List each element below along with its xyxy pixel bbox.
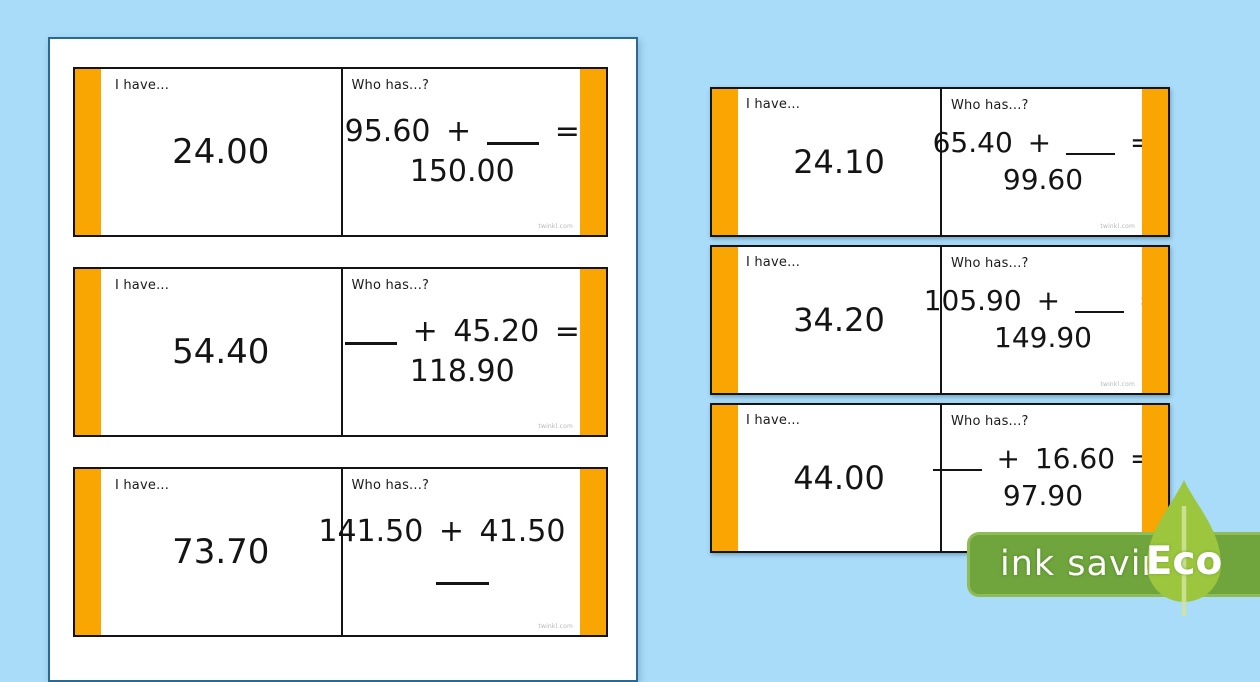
answer-blank <box>345 326 398 345</box>
equation-line-2: 118.90 <box>410 352 515 392</box>
orange-strip-right <box>1142 89 1168 235</box>
orange-strip-left <box>712 405 738 551</box>
i-have-value: 24.10 <box>738 89 940 235</box>
worksheet-preview: { "labels": { "i_have": "I have...", "wh… <box>0 0 1260 630</box>
orange-strip-right <box>580 469 606 635</box>
loop-card-right-1: I have... 24.10 Who has...? 65.40 + = 99… <box>710 87 1170 237</box>
loop-card-right-3: I have... 44.00 Who has...? + 16.60 = 97… <box>710 403 1170 553</box>
equation: 95.60 + = 150.00 <box>347 69 579 235</box>
equation: 65.40 + = 99.60 <box>946 89 1140 235</box>
equation-line-1: + 45.20 = <box>345 312 580 352</box>
equation: 105.90 + = 149.90 <box>946 247 1140 393</box>
loop-card-left-2: I have... 54.40 Who has...? + 45.20 = 11… <box>73 267 608 437</box>
loop-card-right-2: I have... 34.20 Who has...? 105.90 + = 1… <box>710 245 1170 395</box>
answer-blank <box>1066 138 1115 155</box>
orange-strip-left <box>712 247 738 393</box>
equation-line-2 <box>436 552 489 592</box>
equation: + 45.20 = 118.90 <box>347 269 579 435</box>
orange-strip-left <box>712 89 738 235</box>
twinkl-watermark: twinkl.com <box>538 623 573 630</box>
eco-label: Eco <box>1142 539 1226 584</box>
orange-strip-left <box>75 269 101 435</box>
equation-line-2: 149.90 <box>994 320 1092 357</box>
i-have-value: 73.70 <box>101 469 341 635</box>
orange-strip-left <box>75 469 101 635</box>
loop-card-left-1: I have... 24.00 Who has...? 95.60 + = 15… <box>73 67 608 237</box>
i-have-value: 44.00 <box>738 405 940 551</box>
equation-line-1: 95.60 + = <box>345 112 580 152</box>
i-have-value: 34.20 <box>738 247 940 393</box>
answer-blank <box>1075 296 1124 313</box>
equation-line-1: 65.40 + = <box>933 125 1154 162</box>
equation-line-2: 150.00 <box>410 152 515 192</box>
twinkl-watermark: twinkl.com <box>538 423 573 430</box>
equation-line-1: 105.90 + = <box>924 283 1163 320</box>
answer-blank <box>436 566 489 585</box>
twinkl-watermark: twinkl.com <box>1100 223 1135 230</box>
i-have-value: 54.40 <box>101 269 341 435</box>
orange-strip-right <box>580 69 606 235</box>
orange-strip-right <box>580 269 606 435</box>
worksheet-page: I have... 24.00 Who has...? 95.60 + = 15… <box>48 37 638 682</box>
equation: 141.50 + 41.50 = <box>347 469 579 635</box>
answer-blank <box>487 126 540 145</box>
equation-line-2: 97.90 <box>1003 478 1083 515</box>
i-have-value: 24.00 <box>101 69 341 235</box>
twinkl-watermark: twinkl.com <box>1100 381 1135 388</box>
answer-blank <box>933 454 982 471</box>
equation-line-1: 141.50 + 41.50 = <box>318 512 606 552</box>
equation: + 16.60 = 97.90 <box>946 405 1140 551</box>
equation-line-2: 99.60 <box>1003 162 1083 199</box>
orange-strip-right <box>1142 247 1168 393</box>
equation-line-1: + 16.60 = <box>933 441 1154 478</box>
loop-card-left-3: I have... 73.70 Who has...? 141.50 + 41.… <box>73 467 608 637</box>
orange-strip-left <box>75 69 101 235</box>
twinkl-watermark: twinkl.com <box>538 223 573 230</box>
